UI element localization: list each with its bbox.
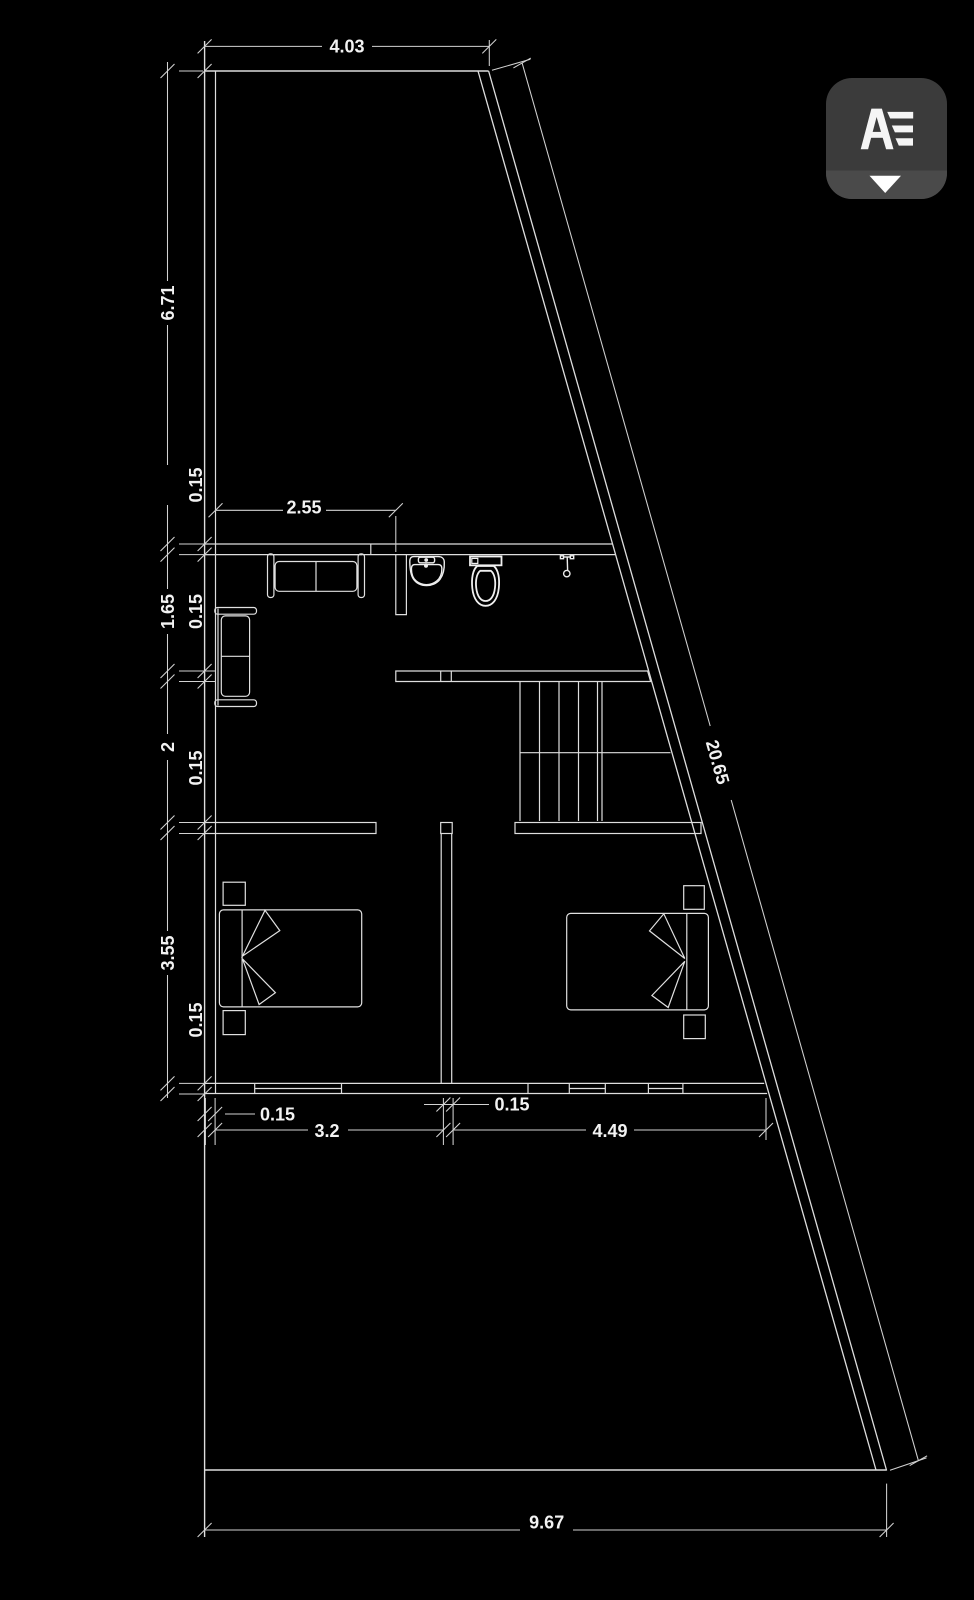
svg-text:0.15: 0.15 [186,467,206,502]
svg-text:0.15: 0.15 [186,594,206,629]
svg-text:2: 2 [158,742,178,752]
svg-text:3.55: 3.55 [158,935,178,970]
svg-text:9.67: 9.67 [529,1513,564,1533]
svg-text:1.65: 1.65 [158,594,178,629]
svg-text:0.15: 0.15 [260,1105,295,1125]
svg-text:0.15: 0.15 [494,1095,529,1115]
svg-text:6.71: 6.71 [158,285,178,320]
svg-text:4.49: 4.49 [592,1121,627,1141]
svg-text:0.15: 0.15 [186,1002,206,1037]
svg-text:20.65: 20.65 [702,738,734,787]
svg-text:3.2: 3.2 [314,1121,339,1141]
svg-text:4.03: 4.03 [329,37,364,57]
svg-text:0.15: 0.15 [186,750,206,785]
svg-text:2.55: 2.55 [286,498,321,518]
